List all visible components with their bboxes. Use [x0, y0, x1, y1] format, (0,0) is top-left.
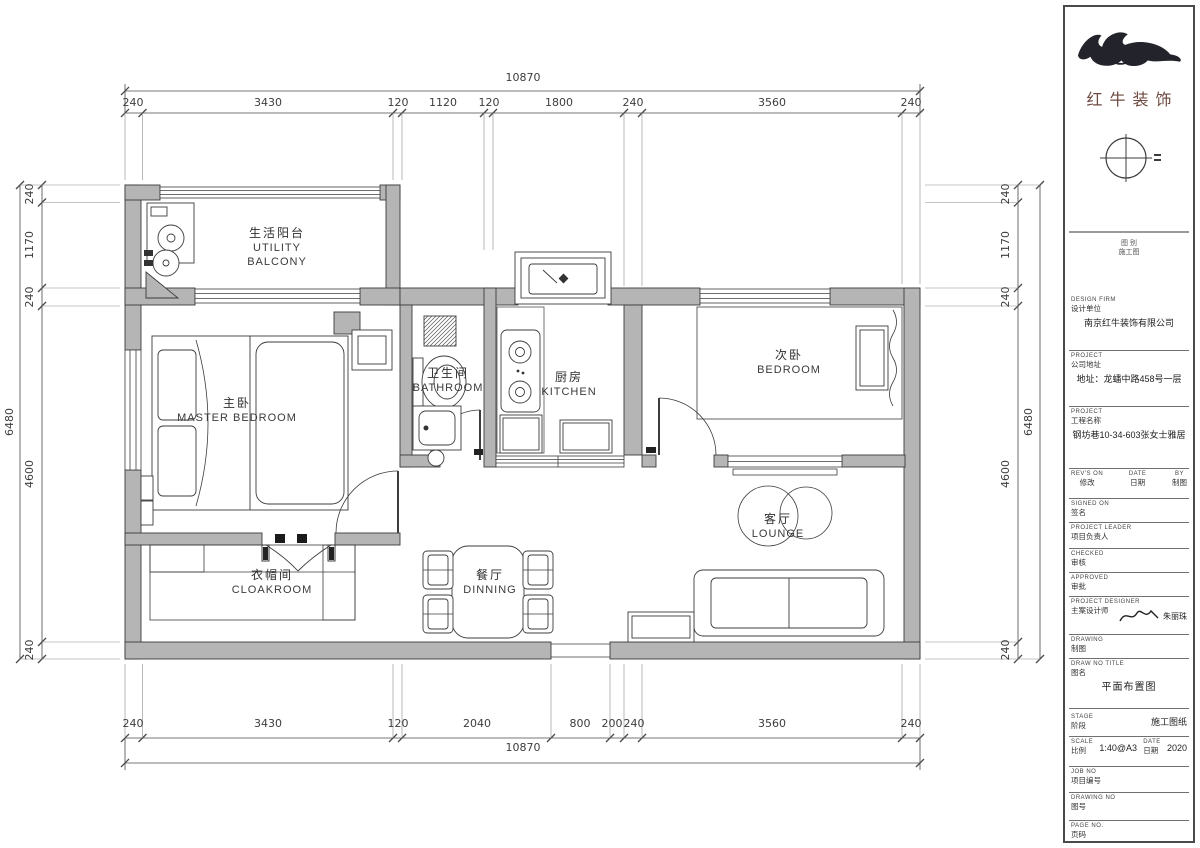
titleblock-divider — [1069, 231, 1189, 233]
dim-top-seg: 1800 — [531, 97, 587, 109]
dim-left-total: 6480 — [4, 398, 16, 446]
titleblock-panel: 红牛装饰 图 别 施工图 DESIGN FIRM 设计单位 南京红牛装饰有限公司… — [1063, 5, 1195, 843]
dim-right-seg: 1170 — [1000, 223, 1012, 267]
row-rev-date-by: REV'S ON修改 DATE日期 BY制图 — [1069, 469, 1189, 499]
row-drawing-title: DRAW NO TITLE 图名 平面布置图 — [1069, 659, 1189, 709]
row-job-no: JOB NO 项目编号 — [1069, 767, 1189, 793]
bedside-shelf — [141, 476, 153, 525]
dim-right-seg: 240 — [1000, 275, 1012, 319]
titleblock-rows: DESIGN FIRM 设计单位 南京红牛装饰有限公司 PROJECT 公司地址… — [1069, 295, 1189, 848]
floorplan-sheet: 生活阳台 UTILITY BALCONY 主卧 MASTER BEDROOM 卫… — [0, 0, 1200, 848]
row-signed: SIGNED ON 签名 — [1069, 499, 1189, 523]
dim-top-seg: 240 — [605, 97, 661, 109]
gas-stove — [501, 330, 540, 412]
row-checked: CHECKED 审核 — [1069, 549, 1189, 573]
dim-right-seg: 240 — [1000, 628, 1012, 672]
dim-left-seg: 240 — [24, 275, 36, 319]
brand-name: 红牛装饰 — [1065, 86, 1193, 110]
dim-left-seg: 4600 — [24, 452, 36, 496]
drawing-title: 平面布置图 — [1071, 682, 1187, 693]
windows-layer — [125, 187, 842, 475]
dim-right-seg: 4600 — [1000, 452, 1012, 496]
dim-bottom-seg: 240 — [105, 718, 161, 730]
designer-name: 朱丽珠 — [1163, 611, 1187, 622]
dining-table — [452, 546, 524, 638]
ceiling-lamp-symbol — [738, 486, 832, 546]
dim-bottom-total: 10870 — [483, 742, 563, 754]
floor-drain — [424, 316, 456, 346]
dim-top-seg: 240 — [883, 97, 939, 109]
row-design-firm: DESIGN FIRM 设计单位 南京红牛装饰有限公司 — [1069, 295, 1189, 351]
dim-top-seg: 3430 — [240, 97, 296, 109]
kitchen-bay-window — [515, 252, 611, 304]
side-table — [628, 612, 694, 642]
dim-top-seg: 240 — [105, 97, 161, 109]
row-project-designer: PROJECT DESIGNER 主案设计师 朱丽珠 — [1069, 597, 1189, 635]
rednow-bull-logo-icon — [1073, 17, 1185, 79]
dim-bottom-seg: 2040 — [449, 718, 505, 730]
row-company-address: PROJECT 公司地址 地址：龙蟠中路458号一层 — [1069, 351, 1189, 407]
row-page-no: PAGE NO. 页码 — [1069, 821, 1189, 848]
compass-icon — [1065, 129, 1193, 192]
dim-top-seg: 120 — [463, 97, 515, 109]
nightstand — [352, 330, 392, 370]
master-bed — [152, 336, 348, 510]
dim-bottom-seg: 240 — [883, 718, 939, 730]
row-project-name: PROJECT 工程名称 钢坊巷10-34-603张女士雅居 — [1069, 407, 1189, 469]
dim-left-seg: 1170 — [24, 223, 36, 267]
cloakroom-closet — [150, 545, 355, 620]
toilet — [413, 356, 466, 408]
drawing-category-note: 图 别 施工图 — [1065, 239, 1193, 257]
designer-signature-icon — [1118, 607, 1160, 625]
bedroom-bed — [697, 307, 902, 419]
dim-left-seg: 240 — [24, 628, 36, 672]
dining-chairs — [423, 551, 553, 633]
dim-bottom-seg: 3430 — [240, 718, 296, 730]
row-project-leader: PROJECT LEADER 项目负责人 — [1069, 523, 1189, 549]
dim-bottom-seg: 240 — [614, 718, 654, 730]
dim-bottom-seg: 120 — [372, 718, 424, 730]
dim-bottom-seg: 3560 — [744, 718, 800, 730]
row-scale-date: SCALE比例 1:40@A3 DATE日期 2020 — [1069, 737, 1189, 767]
furniture-layer — [141, 203, 902, 642]
dim-top-total: 10870 — [483, 72, 563, 84]
row-stage: STAGE阶段 施工图纸 — [1069, 709, 1189, 737]
dim-right-seg: 240 — [1000, 172, 1012, 216]
row-drawn: DRAWING 制图 — [1069, 635, 1189, 659]
sofa — [694, 570, 884, 636]
kitchen-cabinet — [500, 415, 612, 453]
dim-right-total: 6480 — [1023, 398, 1035, 446]
row-approved: APPROVED 审批 — [1069, 573, 1189, 597]
logo-block: 红牛装饰 — [1065, 17, 1193, 110]
dim-left-seg: 240 — [24, 172, 36, 216]
row-drawing-no: DRAWING NO 图号 — [1069, 793, 1189, 821]
dim-top-seg: 3560 — [744, 97, 800, 109]
